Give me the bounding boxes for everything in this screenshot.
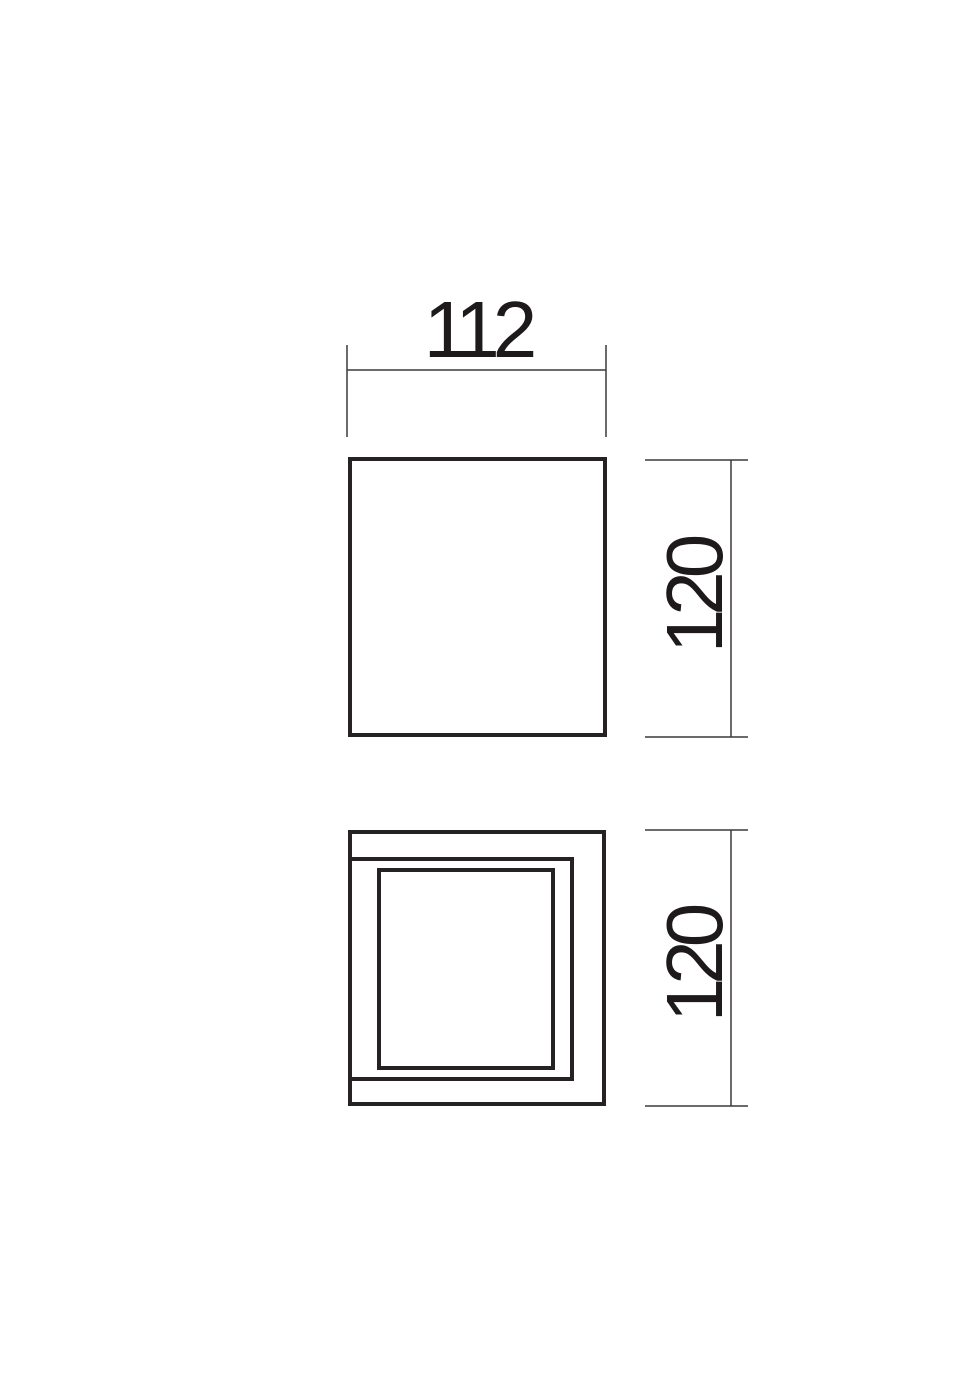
- width-dimension-label: 112: [424, 285, 534, 374]
- depth-dimension-label: 120: [650, 905, 739, 1022]
- side-view: [350, 832, 604, 1104]
- front-view-outline: [350, 459, 605, 735]
- depth-dimension: 120: [645, 830, 748, 1106]
- dimension-drawing: 112 120 120: [0, 0, 980, 1400]
- side-view-inner-outline: [379, 870, 553, 1068]
- width-dimension: 112: [347, 285, 606, 437]
- side-view-outer-outline: [350, 832, 604, 1104]
- height-dimension-label: 120: [650, 536, 739, 653]
- front-view: [350, 459, 605, 735]
- side-view-body-outline: [350, 859, 572, 1079]
- height-dimension: 120: [645, 460, 748, 737]
- technical-drawing-page: 112 120 120: [0, 0, 980, 1400]
